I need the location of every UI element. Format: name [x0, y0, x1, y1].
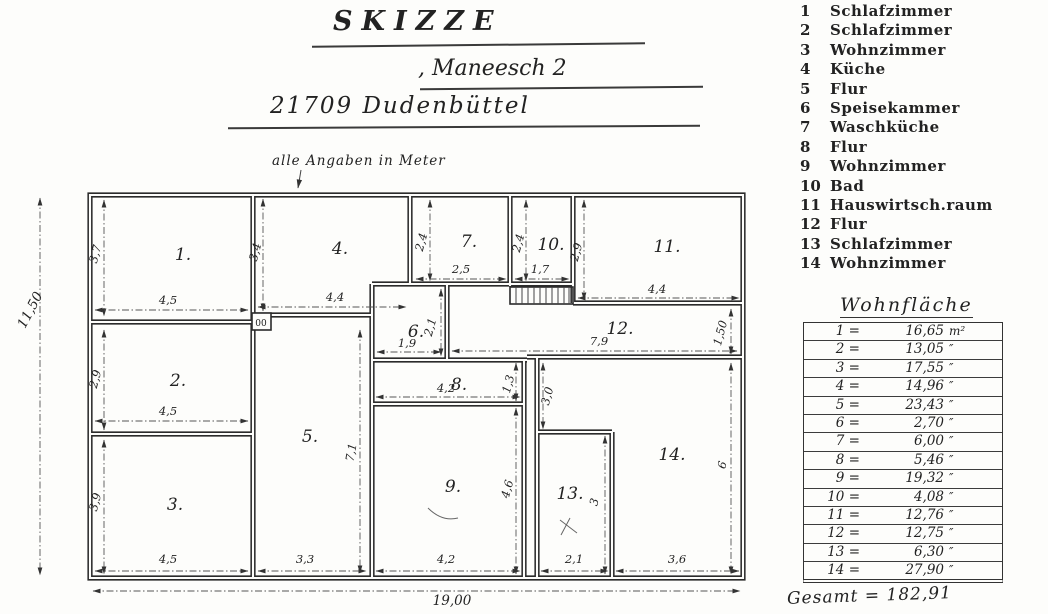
- dim-r1-w: 4,5: [158, 293, 177, 307]
- room-label-7: 7.: [461, 232, 477, 252]
- sketch-page: SKIZZE , Maneesch 2 21709 Dudenbüttel al…: [0, 0, 1048, 614]
- dim-r9-h: 4,6: [498, 478, 517, 500]
- dim-r4-w: 4,4: [325, 290, 344, 304]
- dim-r9-w: 4,2: [436, 552, 455, 566]
- staircase-hatch: [510, 287, 573, 304]
- room-label-13: 13.: [556, 484, 583, 504]
- shaft-box: 00: [252, 313, 271, 330]
- dim-r14-h: 6: [714, 460, 729, 471]
- dim-overall-height: 11,50: [14, 289, 46, 331]
- dim-r3-w: 4,5: [158, 552, 177, 566]
- room-label-11: 11.: [653, 237, 680, 257]
- dim-overall-width: 19,00: [433, 593, 472, 609]
- room-label-12: 12.: [606, 319, 633, 339]
- room-labels: 1. 2. 3. 4. 5. 6. 7. 8. 9. 10. 11. 12. 1…: [167, 232, 686, 515]
- room-label-14: 14.: [658, 445, 685, 465]
- dim-r8-h: 1,3: [499, 373, 517, 394]
- dim-r5-h: 7,1: [343, 442, 360, 462]
- dimension-lines: [40, 198, 740, 591]
- dim-mid-h: 3,0: [538, 385, 556, 406]
- shaft-label: 00: [255, 319, 267, 329]
- dim-r11-w: 4,4: [647, 282, 666, 296]
- dim-r7-w: 2,5: [451, 262, 470, 276]
- dim-r5-w: 3,3: [296, 552, 314, 566]
- room-label-10: 10.: [537, 235, 564, 255]
- dim-r10-w: 1,7: [531, 262, 550, 276]
- dim-r11-h: 2,9: [567, 241, 586, 263]
- door-sketch-marks: [428, 508, 577, 535]
- dim-r14-w: 3,6: [668, 552, 686, 566]
- room-label-4: 4.: [331, 239, 348, 259]
- dim-r2-w: 4,5: [158, 404, 177, 418]
- note-arrow: [298, 170, 301, 188]
- room-label-9: 9.: [445, 477, 461, 497]
- dim-r12-h: 1,50: [710, 319, 730, 347]
- room-label-1: 1.: [175, 245, 191, 265]
- room-label-2: 2.: [169, 371, 186, 391]
- dim-r8-w: 4,2: [436, 381, 455, 395]
- room-label-5: 5.: [302, 427, 318, 447]
- room-label-3: 3.: [167, 495, 183, 515]
- dim-r12-w: 7,9: [590, 334, 608, 348]
- dim-r13-w: 2,1: [564, 552, 583, 566]
- dim-r6-w: 1,9: [398, 336, 416, 350]
- floor-plan: 00: [0, 0, 1048, 614]
- dim-r4-h: 3,4: [246, 241, 264, 262]
- dim-r6-h: 2,1: [421, 316, 440, 338]
- dim-r7-h: 2,4: [412, 231, 431, 253]
- dim-r13-h: 3: [586, 497, 601, 508]
